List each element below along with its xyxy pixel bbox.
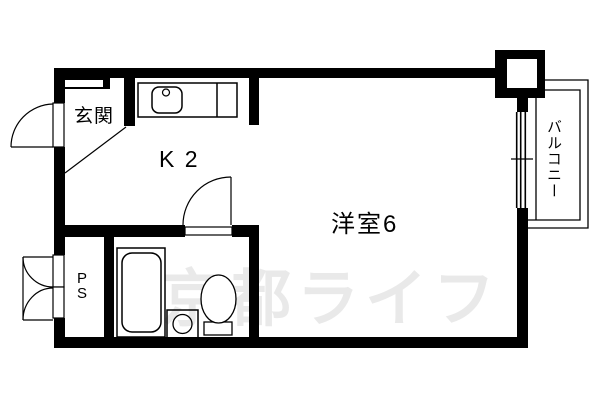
wall-kitchen-right (249, 78, 259, 125)
wall-bathroom-right (249, 225, 259, 340)
wall-kitchen-left (124, 78, 135, 126)
bathtub-icon (117, 248, 165, 337)
main-room-label: 洋室6 (331, 204, 398, 239)
ps-letter-s: S (77, 285, 87, 302)
bathroom-door-swing (183, 177, 231, 225)
wall-right (517, 208, 528, 348)
toilet-icon (201, 275, 236, 335)
pillar-inner (507, 59, 537, 88)
ps-door-leaf-top (53, 255, 64, 287)
bathroom-door-leaf (185, 227, 232, 235)
wall-mid-left (54, 225, 185, 237)
shoe-cabinet-inner (65, 80, 103, 87)
wall-left-middle (54, 147, 65, 255)
entrance-door-swing (11, 104, 53, 147)
balcony-window-icon (511, 112, 533, 208)
wall-top (54, 68, 495, 78)
kitchen-label: K 2 (159, 146, 200, 173)
genkan-step-line (65, 127, 126, 173)
pipe-space-label: P S (73, 271, 91, 301)
floor-plan-drawing (0, 0, 600, 400)
entrance-door-leaf (53, 103, 64, 147)
ps-door-leaf-bottom (53, 287, 64, 318)
ps-doors-swing (23, 257, 53, 320)
faucet-icon (163, 89, 170, 96)
wall-stub-below-pillar (517, 98, 528, 112)
washbasin-icon (167, 310, 198, 338)
floor-plan: 京都ライフ (0, 0, 600, 400)
wall-bottom (54, 337, 528, 348)
genkan-label: 玄関 (74, 101, 114, 128)
balcony-label: バルコニー (543, 119, 564, 204)
kitchen-counter (138, 83, 237, 117)
wall-ps-right (104, 237, 114, 340)
